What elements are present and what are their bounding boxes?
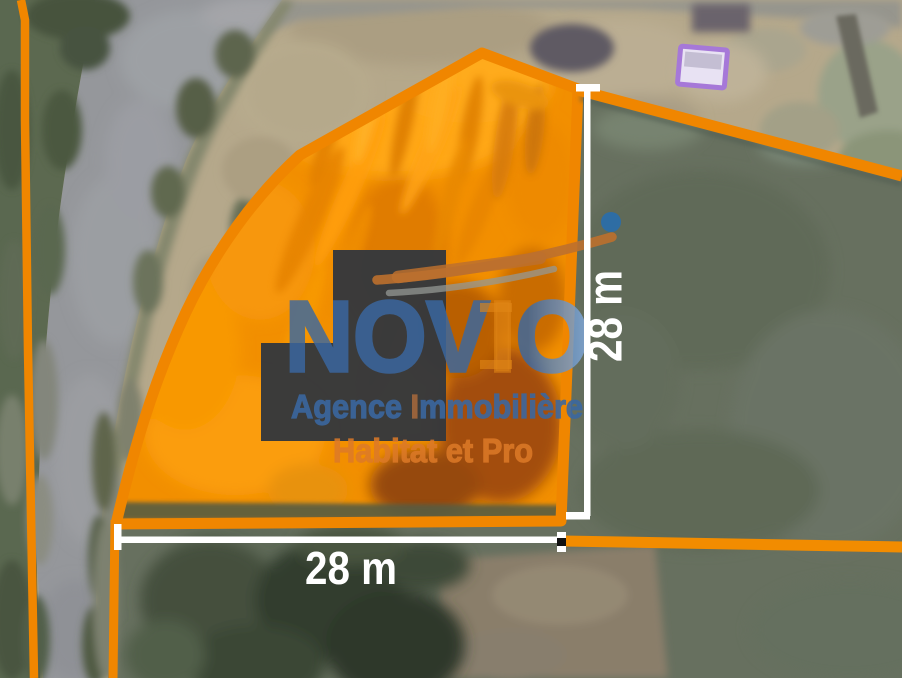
svg-text:Habitat et Pro: Habitat et Pro [333, 432, 533, 469]
svg-text:Agence Immobilière: Agence Immobilière [291, 388, 583, 425]
svg-text:28 m: 28 m [305, 542, 397, 594]
svg-text:28 m: 28 m [580, 270, 633, 362]
svg-text:NOVIO: NOVIO [285, 281, 589, 393]
